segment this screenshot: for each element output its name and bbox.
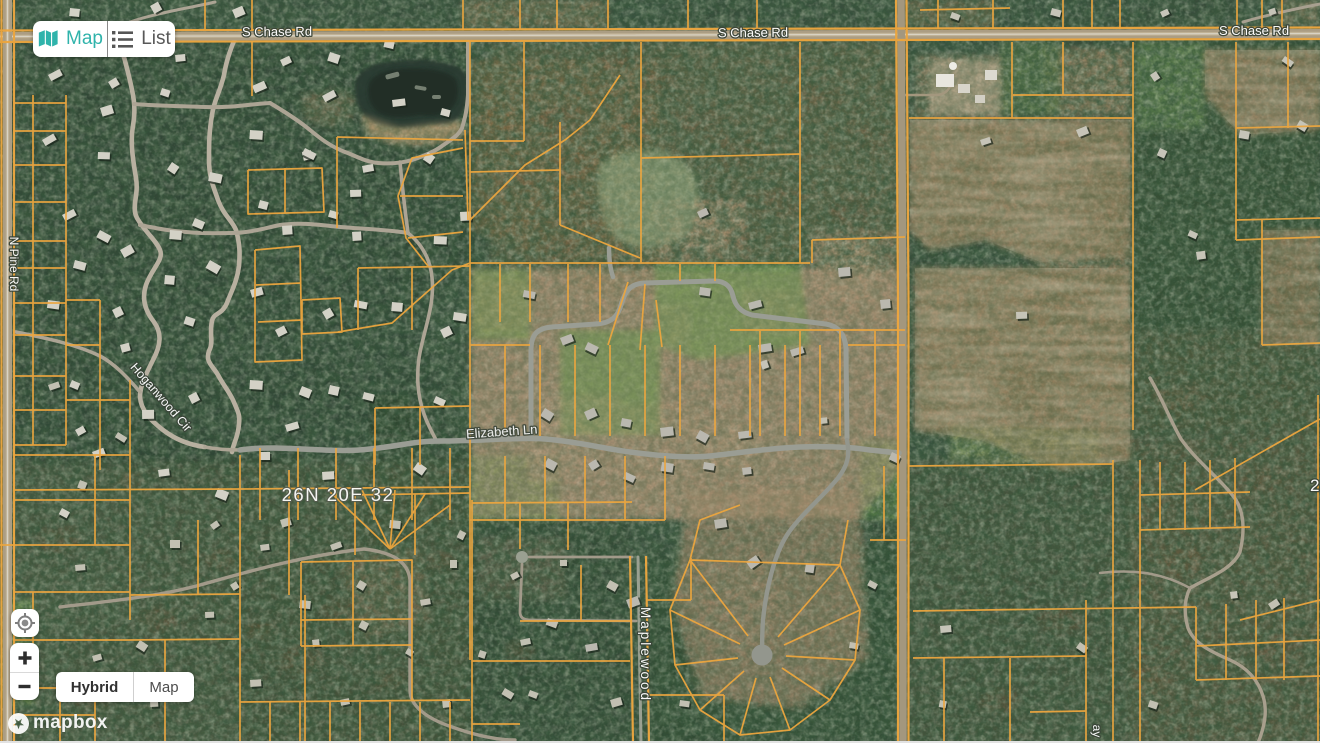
svg-text:S Chase Rd: S Chase Rd (718, 25, 788, 41)
svg-text:26N 20E 32: 26N 20E 32 (282, 484, 395, 505)
svg-text:2: 2 (1310, 476, 1319, 495)
svg-text:S Chase Rd: S Chase Rd (1219, 23, 1289, 38)
svg-text:S Chase Rd: S Chase Rd (242, 24, 312, 40)
svg-text:Maplewood: Maplewood (638, 607, 653, 703)
svg-text:N Pine Rd: N Pine Rd (7, 237, 21, 292)
svg-text:ay: ay (1090, 725, 1104, 738)
